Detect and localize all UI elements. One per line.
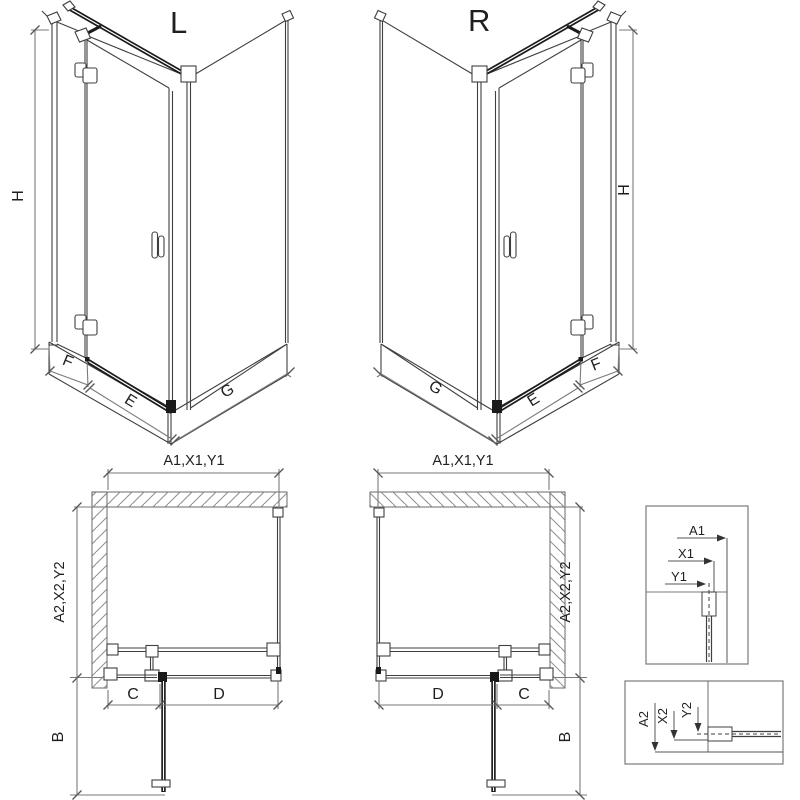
iso-right-drawing: [374, 1, 638, 446]
plan-left-door-dim: D: [213, 686, 225, 703]
plan-left-top-dim: A1,X1,Y1: [163, 453, 224, 469]
diagram-canvas: L H F E G R H F E G A1,X1,Y1 A2,X2,Y2 C …: [0, 0, 800, 800]
plan-right-side-dim: A2,X2,Y2: [558, 561, 574, 622]
dim-label-height-right: H: [616, 184, 633, 196]
plan-right-fixed-dim: C: [518, 686, 530, 703]
detail-depth-x-label: X2: [655, 708, 670, 724]
detail-width-y-label: Y1: [671, 569, 687, 584]
dim-label-door-left: E: [121, 391, 139, 411]
plan-left-drawing: [70, 469, 287, 800]
plan-right-open-dim: B: [557, 732, 574, 743]
detail-depth-y-label: Y2: [679, 702, 694, 718]
plan-left-fixed-dim: C: [127, 686, 139, 703]
plan-left-side-dim: A2,X2,Y2: [52, 561, 68, 622]
detail-box-depth: A2 X2 Y2: [625, 681, 783, 764]
plan-right-door-dim: D: [432, 686, 444, 703]
plan-left-open-dim: B: [50, 732, 67, 743]
detail-depth-a-label: A2: [636, 711, 651, 727]
plan-right-drawing: [370, 469, 587, 800]
detail-box-width: A1 X1 Y1: [646, 506, 748, 664]
dim-label-height-left: H: [10, 190, 27, 202]
dim-label-fixed-left: F: [60, 352, 76, 372]
dim-label-fixed-right: F: [589, 355, 605, 375]
dim-label-door-right: E: [525, 390, 543, 410]
shower-enclosure-diagram: L H F E G R H F E G A1,X1,Y1 A2,X2,Y2 C …: [0, 0, 800, 800]
plan-right-top-dim: A1,X1,Y1: [432, 453, 493, 469]
view-label-left: L: [170, 5, 187, 40]
view-label-right: R: [468, 3, 490, 38]
iso-view-left: L H F E G: [10, 1, 295, 446]
plan-view-right: A1,X1,Y1 A2,X2,Y2 C D B: [370, 453, 587, 800]
iso-left-drawing: [31, 1, 295, 446]
detail-width-x-label: X1: [678, 546, 694, 561]
iso-view-right: R H F E G: [374, 1, 638, 446]
detail-width-a-label: A1: [689, 523, 705, 538]
plan-view-left: A1,X1,Y1 A2,X2,Y2 C D B: [50, 453, 287, 800]
